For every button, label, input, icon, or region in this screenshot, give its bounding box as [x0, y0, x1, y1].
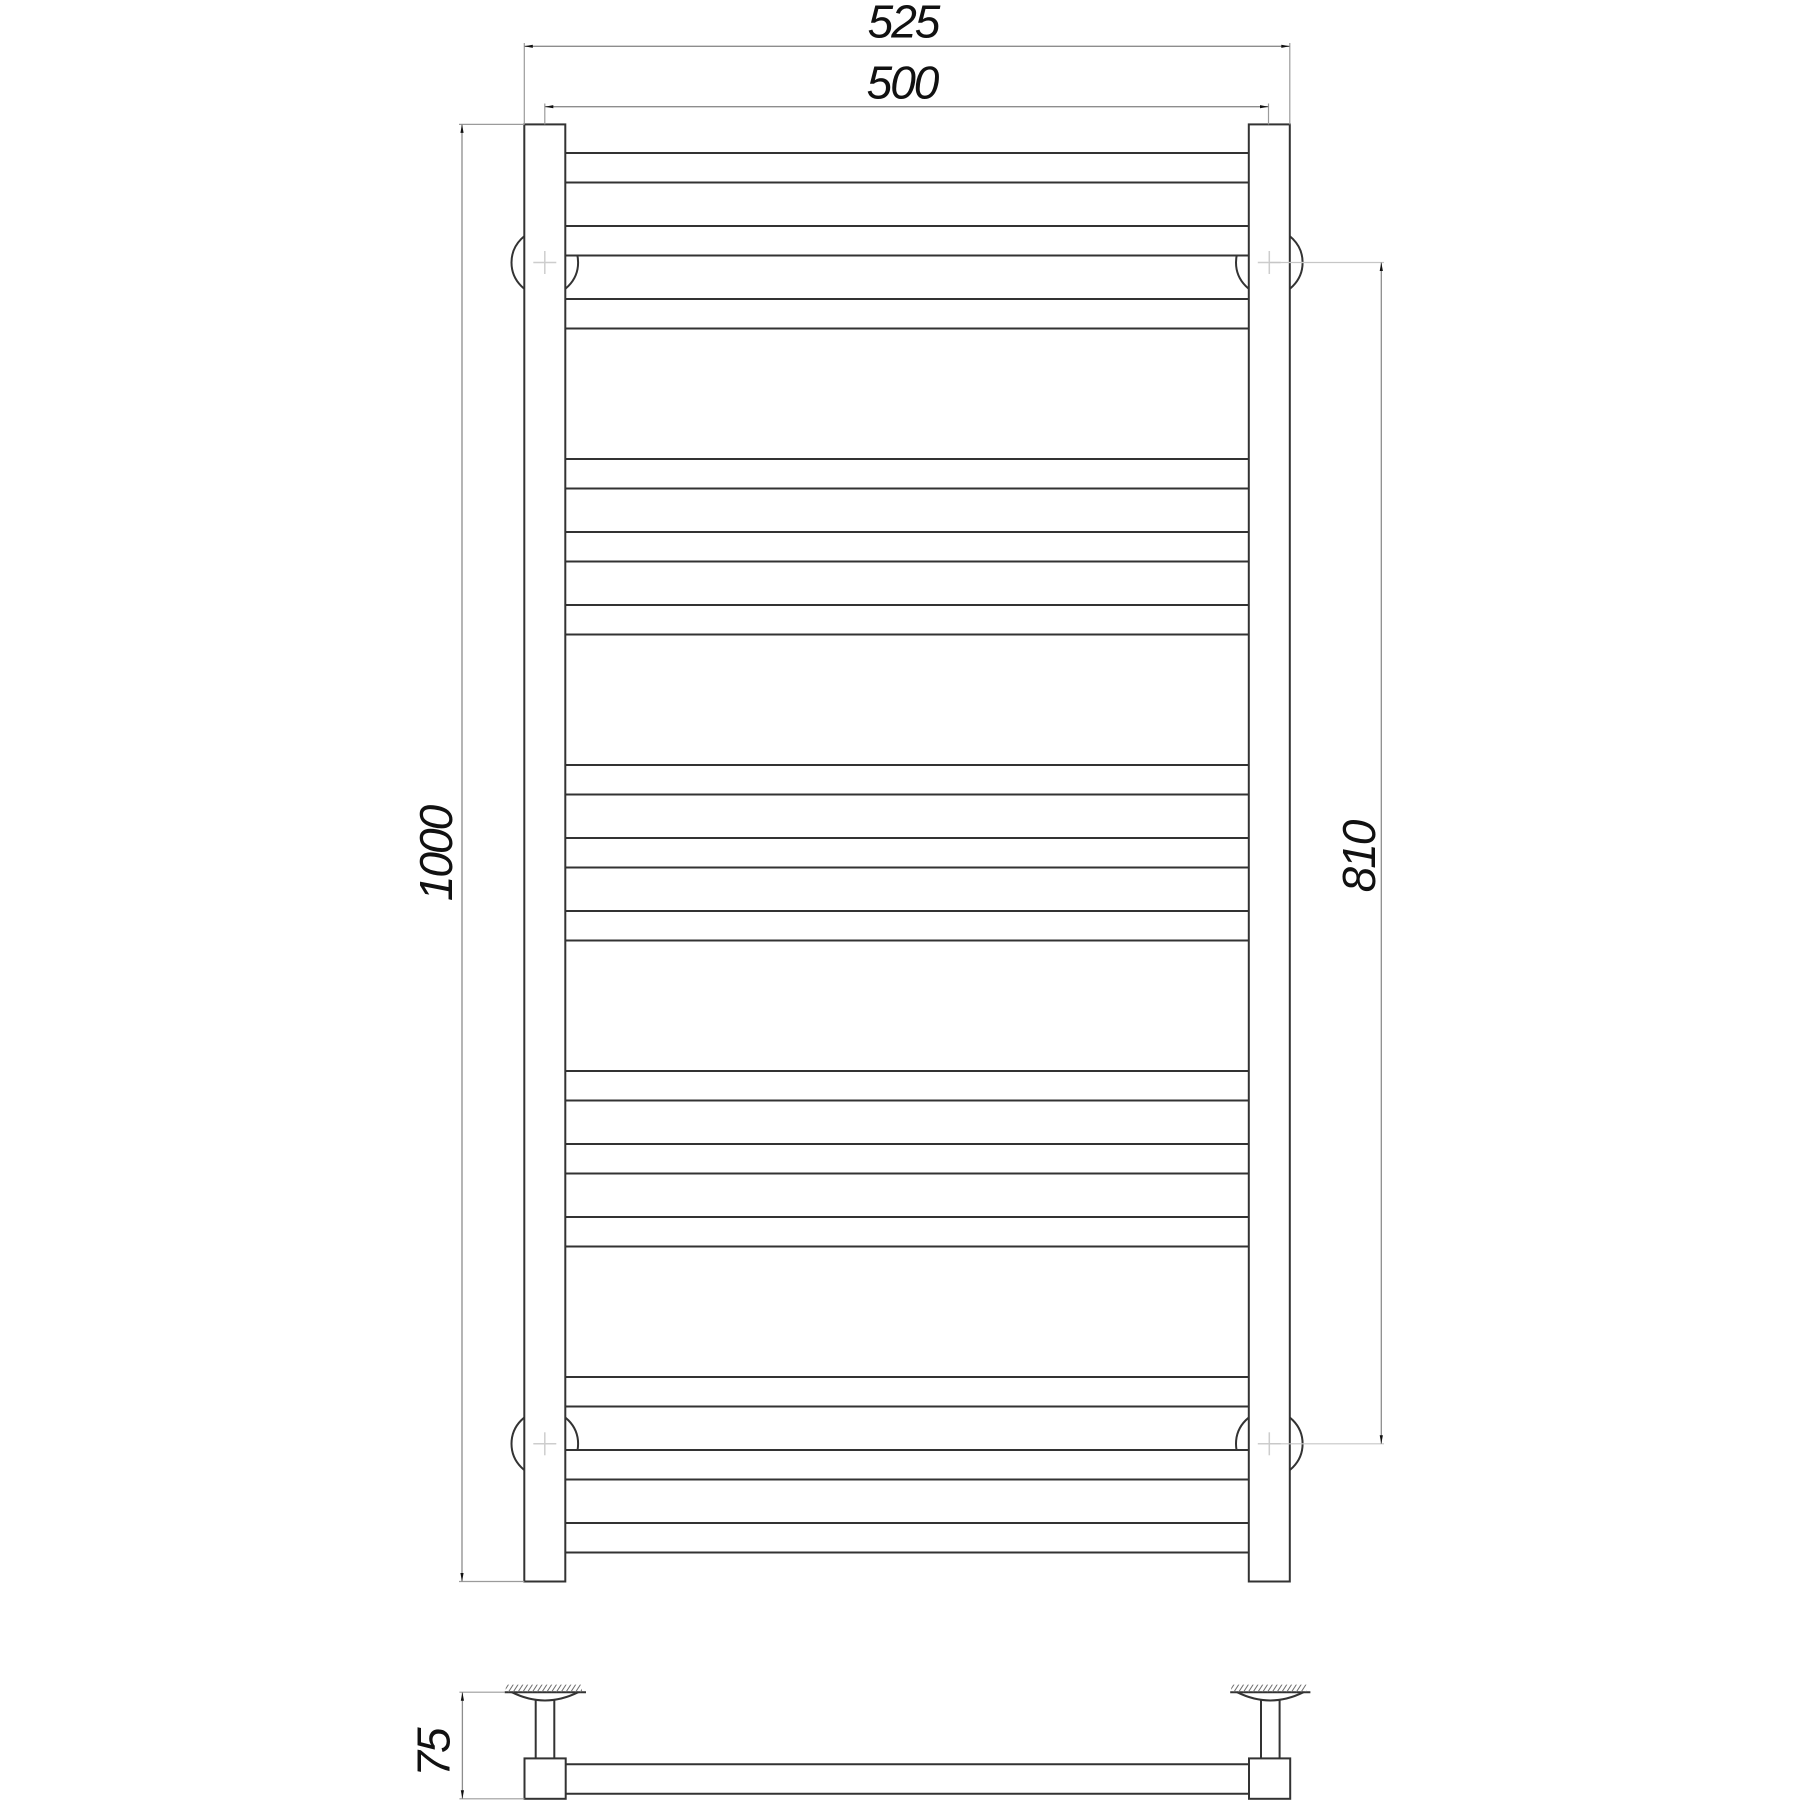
svg-text:75: 75: [408, 1727, 460, 1777]
svg-text:1000: 1000: [410, 804, 462, 901]
svg-text:500: 500: [867, 57, 940, 109]
svg-text:810: 810: [1333, 819, 1385, 892]
svg-text:525: 525: [868, 0, 941, 48]
